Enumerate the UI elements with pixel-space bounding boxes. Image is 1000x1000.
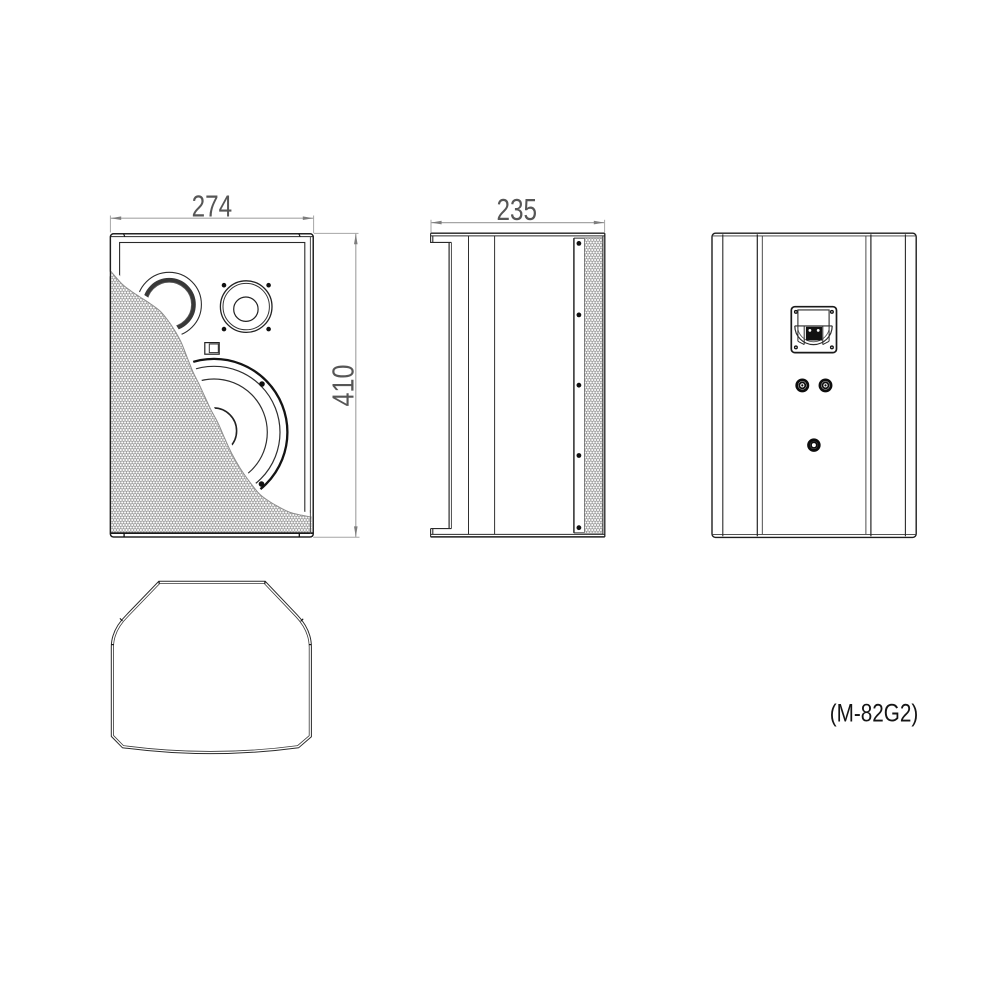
- svg-text:(M-82G2): (M-82G2): [830, 700, 919, 728]
- svg-text:235: 235: [497, 192, 538, 227]
- svg-text:274: 274: [192, 189, 233, 224]
- svg-text:410: 410: [326, 365, 361, 407]
